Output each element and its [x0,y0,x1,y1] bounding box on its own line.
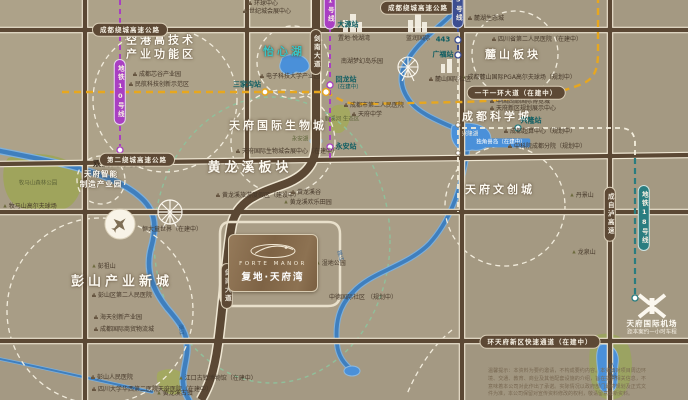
project-logo-cn: 复地·天府湾 [241,269,304,283]
project-logo-card: FORTE MANOR 复地·天府湾 [228,234,318,292]
building-icon [408,14,427,32]
project-emblem-icon [245,243,301,259]
shuangliu-airplane-icon [105,209,135,239]
map-graphics [0,0,688,400]
building-icon [343,14,362,32]
project-logo-en: FORTE MANOR [239,261,307,267]
disclaimer-text: 温馨提示：本资料为要约邀请，不构成要约内容。本资料对项目周边环境、交通、教育、商… [488,368,646,399]
building-icon [441,59,452,73]
map-canvas: 空港高技术 产业功能区成都芯谷产业园民航科技创新示范区怡心湖电子科技大学产业园天… [0,0,688,400]
